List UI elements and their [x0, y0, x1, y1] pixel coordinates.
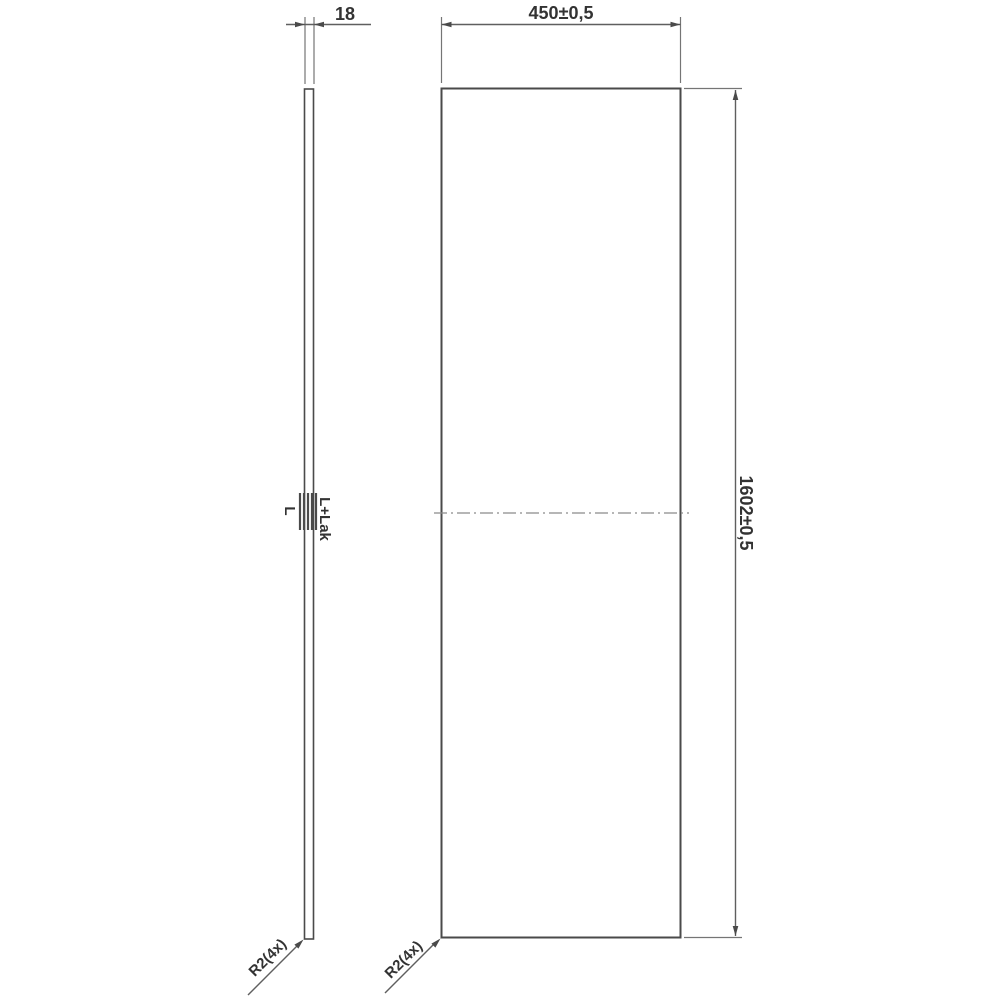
arrowhead-icon [314, 22, 324, 28]
panel-drawing-svg: L L+Lak 18 450±0,5 [0, 0, 1000, 1000]
width-dimension-value: 450±0,5 [529, 3, 594, 23]
surface-finish-left-label: L [281, 506, 298, 515]
dimension-thickness: 18 [286, 4, 371, 84]
corner-radius-front-label: R2(4x) [382, 938, 426, 982]
corner-radius-leader-front: R2(4x) [382, 938, 441, 993]
arrowhead-icon [431, 939, 440, 948]
surface-finish-right-label: L+Lak [316, 497, 333, 541]
technical-drawing-page: L L+Lak 18 450±0,5 [0, 0, 1000, 1000]
thickness-dimension-value: 18 [335, 4, 355, 24]
height-dimension-value: 1602±0,5 [736, 476, 756, 551]
arrowhead-icon [733, 926, 739, 936]
arrowhead-icon [733, 90, 739, 100]
arrowhead-icon [295, 22, 305, 28]
dimension-height: 1602±0,5 [684, 89, 756, 938]
corner-radius-leader-side: R2(4x) [246, 936, 304, 995]
front-view [434, 89, 689, 938]
corner-radius-side-label: R2(4x) [246, 936, 290, 980]
arrowhead-icon [671, 22, 681, 28]
arrowhead-icon [442, 22, 452, 28]
dimension-width: 450±0,5 [442, 3, 681, 83]
